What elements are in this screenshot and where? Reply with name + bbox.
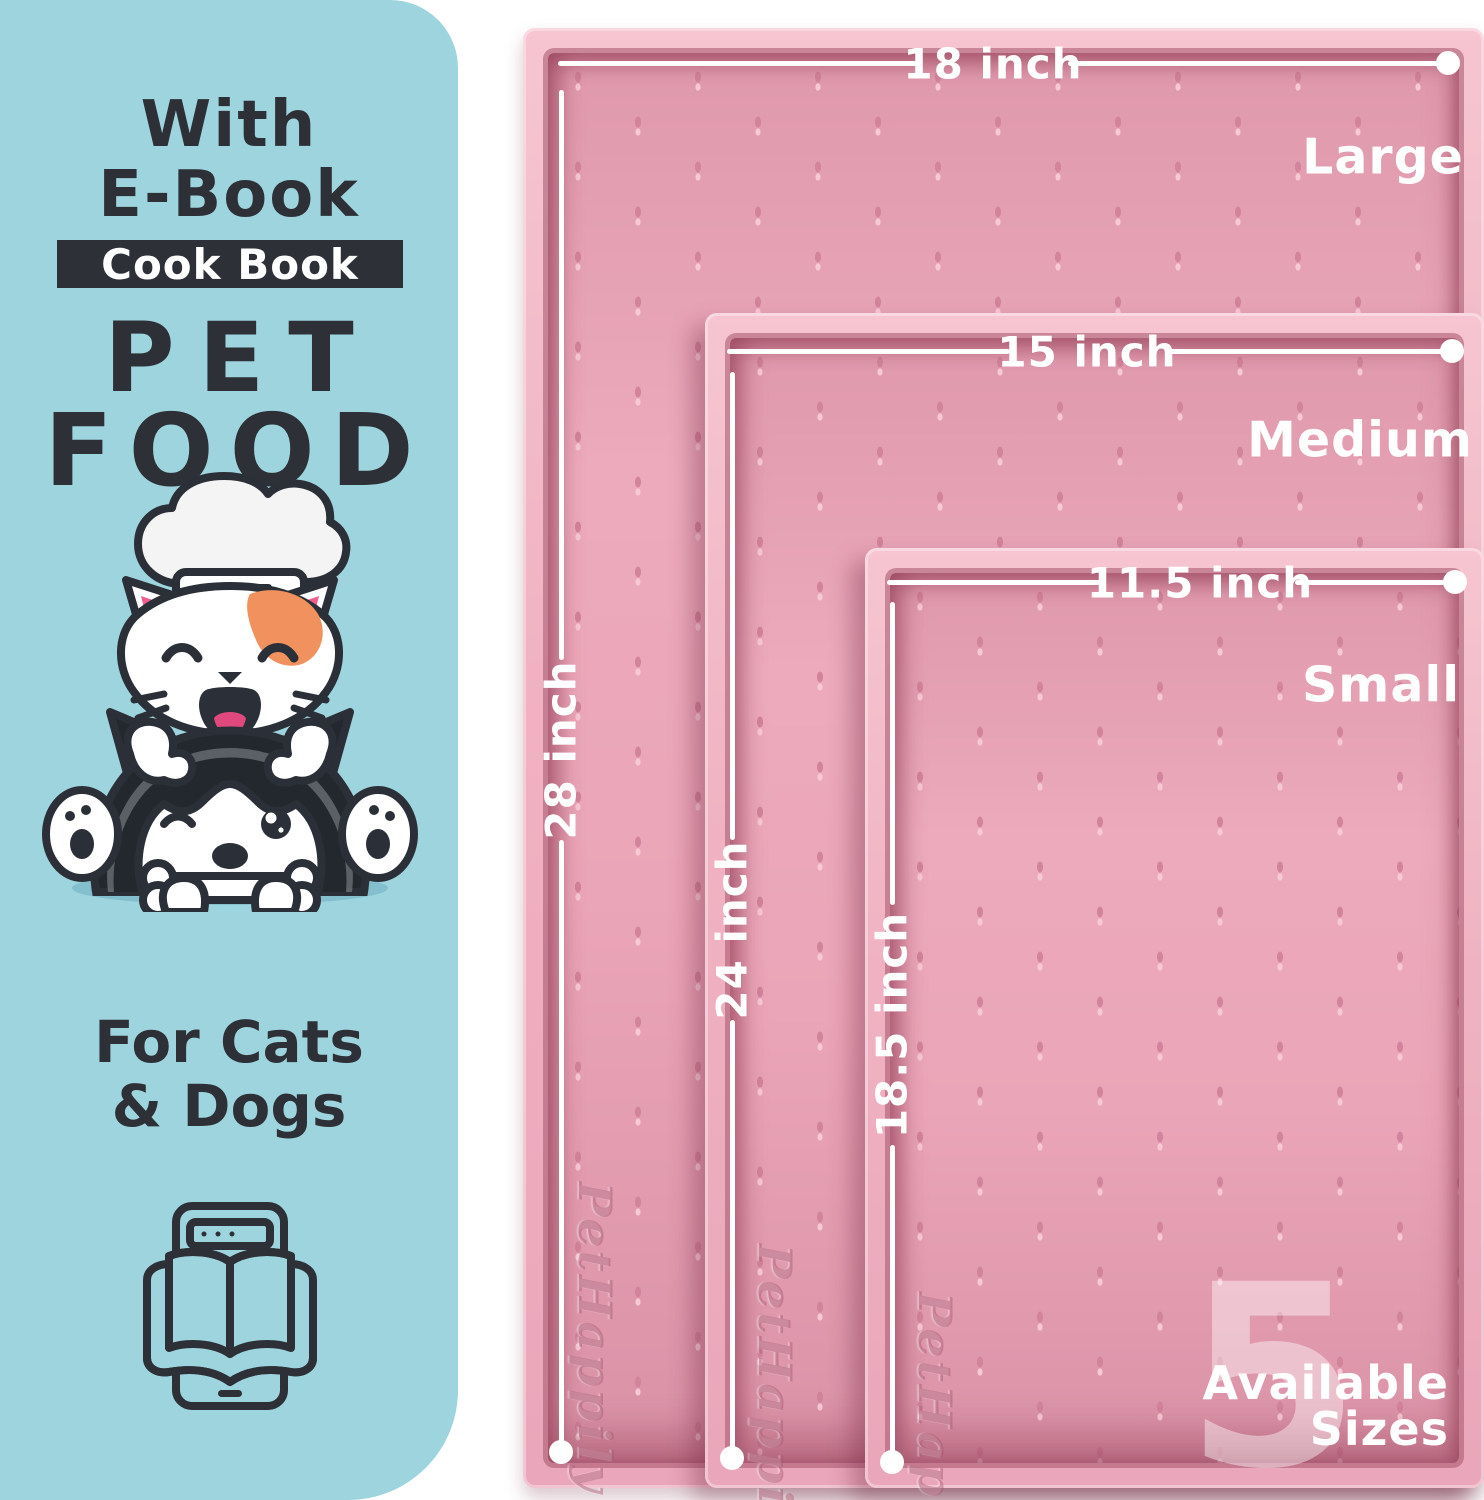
dim-dot-large-height — [549, 1440, 573, 1464]
dim-line-large-height-a — [559, 90, 564, 660]
left-info-panel: With E-Book Cook Book PET FOOD — [0, 0, 458, 1500]
and-dogs-text: & Dogs — [0, 1072, 458, 1140]
brand-emboss-large: PetHappily — [568, 1182, 622, 1495]
size-label-medium: Medium — [1247, 412, 1473, 469]
dim-label-small-height: 18.5 inch — [868, 912, 917, 1138]
product-infographic: With E-Book Cook Book PET FOOD — [0, 0, 1484, 1500]
dim-dot-large-width — [1436, 51, 1460, 75]
dim-dot-medium-width — [1440, 339, 1464, 363]
size-label-large: Large — [1302, 129, 1464, 186]
dim-label-small-width: 11.5 inch — [1087, 559, 1313, 608]
dim-line-medium-height-a — [730, 372, 735, 840]
dim-line-small-width-b — [1295, 580, 1447, 585]
dim-dot-small-height — [880, 1450, 904, 1474]
dim-label-medium-width: 15 inch — [997, 328, 1176, 377]
size-label-small: Small — [1302, 657, 1460, 714]
chef-cat-dog-illustration — [38, 472, 422, 912]
dim-line-medium-width-a — [727, 349, 1010, 354]
with-text: With — [0, 88, 458, 162]
dog-paw-right — [342, 790, 414, 878]
dim-label-medium-height: 24 inch — [708, 840, 757, 1019]
dim-dot-small-width — [1443, 570, 1467, 594]
dim-label-large-height: 28 inch — [537, 660, 586, 839]
ebook-text: E-Book — [0, 158, 458, 232]
dim-label-large-width: 18 inch — [903, 40, 1082, 89]
dim-line-small-height-b — [890, 1145, 895, 1456]
sizes-text: Sizes — [1310, 1402, 1449, 1456]
dim-line-large-width-a — [558, 61, 918, 66]
brand-emboss-medium: PetHappily — [748, 1244, 802, 1500]
brand-emboss-small: PetHappily — [908, 1292, 962, 1500]
dim-line-small-height-a — [890, 602, 895, 905]
cookbook-badge: Cook Book — [57, 240, 403, 288]
dim-line-large-height-b — [559, 840, 564, 1446]
dim-line-small-width-a — [887, 580, 1105, 585]
ebook-icon — [133, 1200, 327, 1412]
dim-dot-medium-height — [720, 1446, 744, 1470]
for-cats-text: For Cats — [0, 1008, 458, 1076]
dim-line-large-width-b — [1068, 61, 1440, 66]
dim-line-medium-height-b — [730, 1020, 735, 1452]
dim-line-medium-width-b — [1165, 349, 1444, 354]
dog-paw-left — [46, 790, 118, 878]
